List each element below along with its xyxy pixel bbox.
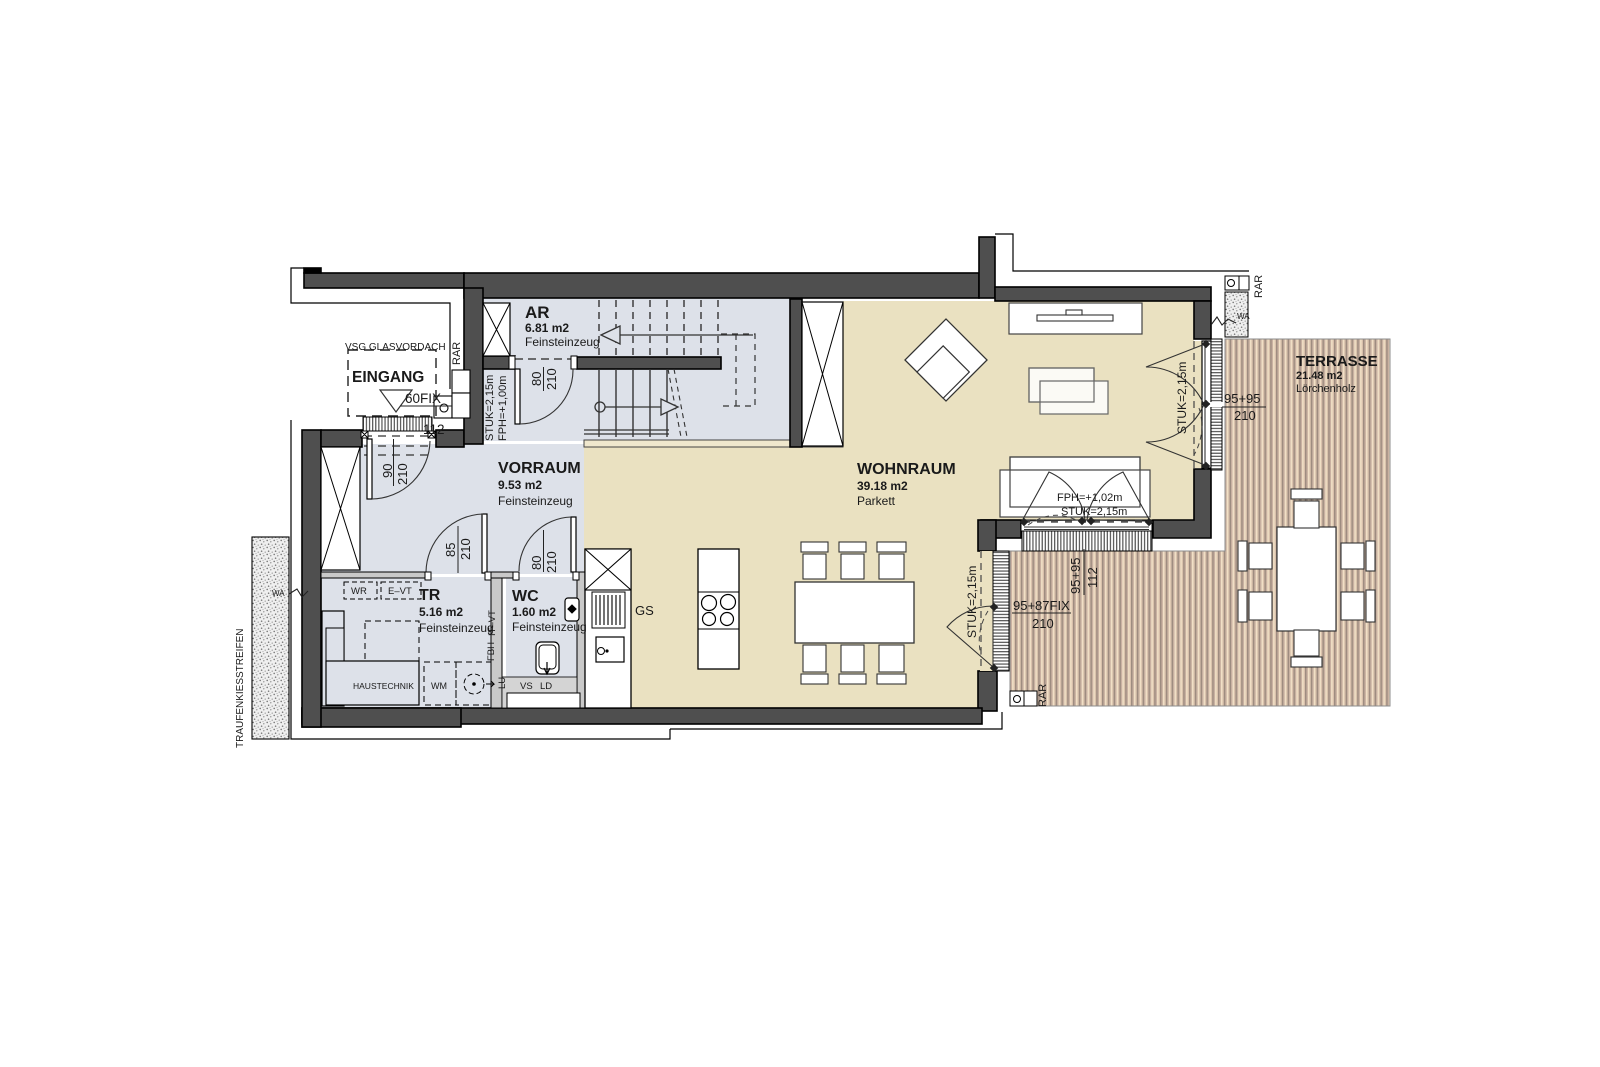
svg-text:WC: WC (512, 588, 539, 605)
svg-text:TRAUFENKIESSTREIFEN: TRAUFENKIESSTREIFEN (235, 629, 246, 748)
svg-text:RAR: RAR (1037, 684, 1049, 707)
svg-text:1.60 m2: 1.60 m2 (512, 605, 556, 619)
svg-text:210: 210 (544, 551, 559, 573)
svg-text:Parkett: Parkett (857, 494, 896, 508)
svg-text:FPH=+1,02m: FPH=+1,02m (1057, 492, 1122, 504)
svg-text:STUK=2,15m: STUK=2,15m (1061, 506, 1127, 518)
svg-text:112: 112 (423, 422, 445, 437)
svg-text:EINGANG: EINGANG (352, 369, 424, 386)
svg-text:LU: LU (497, 677, 508, 689)
svg-text:STUK=2,15m: STUK=2,15m (484, 375, 496, 441)
svg-text:5.16 m2: 5.16 m2 (419, 605, 463, 619)
svg-text:VORRAUM: VORRAUM (498, 460, 581, 477)
svg-text:GS: GS (635, 603, 654, 618)
svg-text:6.81 m2: 6.81 m2 (525, 321, 569, 335)
svg-text:WR: WR (351, 586, 367, 597)
svg-text:112: 112 (1085, 567, 1100, 588)
svg-text:80: 80 (529, 556, 544, 570)
svg-text:WOHNRAUM: WOHNRAUM (857, 461, 956, 478)
svg-text:60FIX: 60FIX (405, 391, 441, 406)
svg-text:RAR: RAR (451, 342, 463, 365)
svg-text:95+95: 95+95 (1224, 391, 1261, 406)
svg-text:80: 80 (529, 372, 544, 386)
svg-text:AR: AR (525, 303, 550, 322)
svg-text:WM: WM (431, 681, 447, 691)
svg-text:Feinsteinzeug: Feinsteinzeug (512, 620, 587, 634)
svg-text:210: 210 (395, 463, 410, 485)
svg-text:FPH=+1,00m: FPH=+1,00m (497, 376, 509, 441)
svg-text:95+95: 95+95 (1068, 557, 1083, 594)
svg-text:210: 210 (458, 538, 473, 560)
svg-text:TERRASSE: TERRASSE (1296, 353, 1378, 370)
svg-text:STUK=2,15m: STUK=2,15m (1175, 362, 1189, 434)
svg-text:WA: WA (272, 589, 285, 598)
svg-text:210: 210 (1234, 408, 1256, 423)
svg-text:LD: LD (540, 681, 552, 692)
svg-text:21.48 m2: 21.48 m2 (1296, 370, 1342, 382)
svg-text:TR: TR (419, 587, 441, 604)
svg-text:STUK=2,15m: STUK=2,15m (965, 566, 979, 638)
svg-text:210: 210 (544, 368, 559, 390)
svg-text:90: 90 (380, 464, 395, 478)
svg-text:39.18 m2: 39.18 m2 (857, 479, 908, 493)
svg-text:VS: VS (520, 681, 533, 692)
svg-text:WA: WA (1237, 312, 1250, 321)
svg-text:Lörchenholz: Lörchenholz (1296, 383, 1356, 395)
svg-text:FBH: FBH (486, 642, 497, 661)
svg-text:HAUSTECHNIK: HAUSTECHNIK (353, 681, 414, 691)
svg-text:Feinsteinzeug: Feinsteinzeug (525, 335, 600, 349)
svg-text:VSG GLASVORDACH: VSG GLASVORDACH (345, 342, 446, 353)
svg-text:RAR: RAR (1253, 275, 1265, 298)
svg-text:IT–VT: IT–VT (487, 610, 498, 636)
svg-text:E–VT: E–VT (388, 586, 412, 597)
svg-text:Feinsteinzeug: Feinsteinzeug (498, 494, 573, 508)
svg-text:210: 210 (1032, 616, 1054, 631)
svg-text:Feinsteinzeug: Feinsteinzeug (419, 621, 494, 635)
svg-text:9.53 m2: 9.53 m2 (498, 478, 542, 492)
svg-text:85: 85 (443, 543, 458, 557)
svg-text:95+87FIX: 95+87FIX (1013, 598, 1070, 613)
